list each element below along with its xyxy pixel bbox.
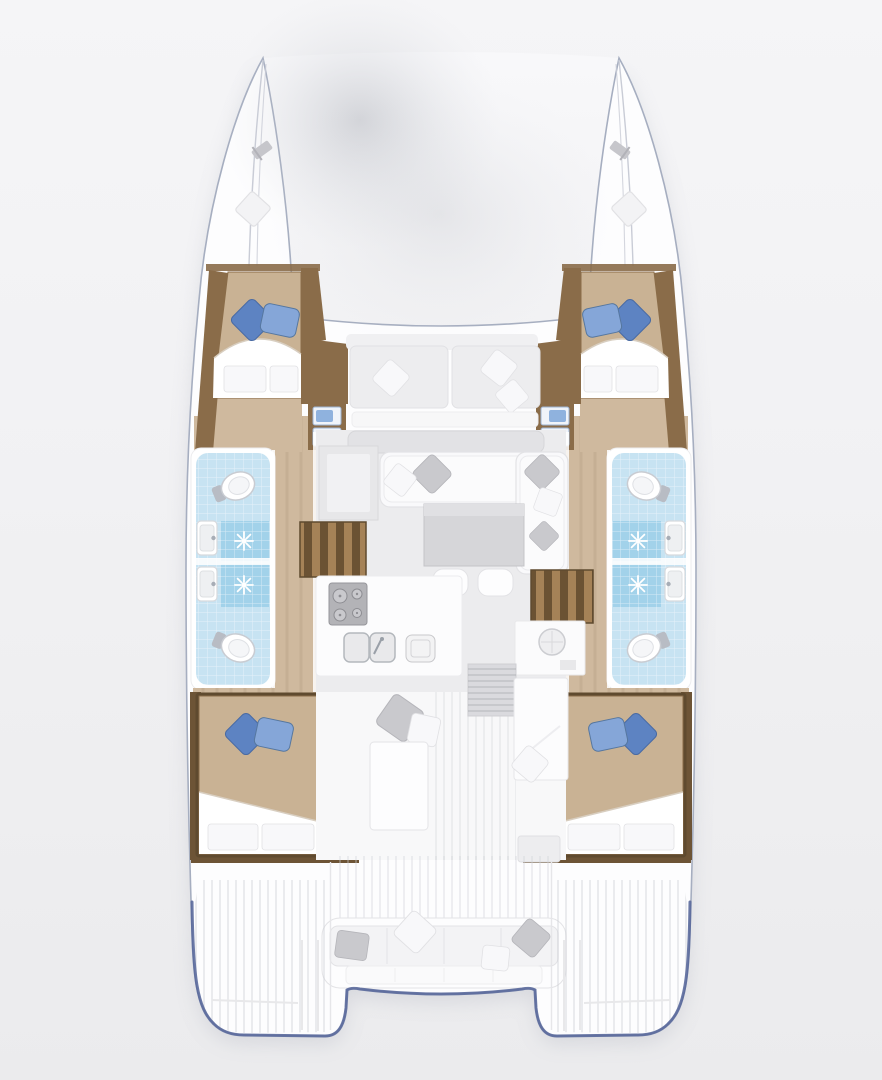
starboard-swim-platform — [552, 862, 689, 1033]
port-swim-platform — [194, 862, 331, 1033]
forward-cockpit — [346, 334, 540, 427]
catamaran-floorplan — [0, 0, 882, 1080]
cabinet-block — [370, 742, 428, 830]
sink — [344, 633, 369, 662]
saloon — [300, 430, 593, 692]
galley — [316, 576, 462, 676]
port-stairs — [300, 522, 366, 577]
starboard-stairs — [531, 570, 593, 623]
aft-passage — [316, 664, 568, 862]
aft-counter — [515, 621, 585, 675]
stool — [478, 569, 513, 596]
floorplan-stage — [0, 0, 882, 1080]
bench-pillow — [481, 945, 510, 972]
bench-pillow — [334, 930, 369, 961]
appliance — [406, 635, 435, 662]
aft-cockpit — [322, 856, 566, 988]
